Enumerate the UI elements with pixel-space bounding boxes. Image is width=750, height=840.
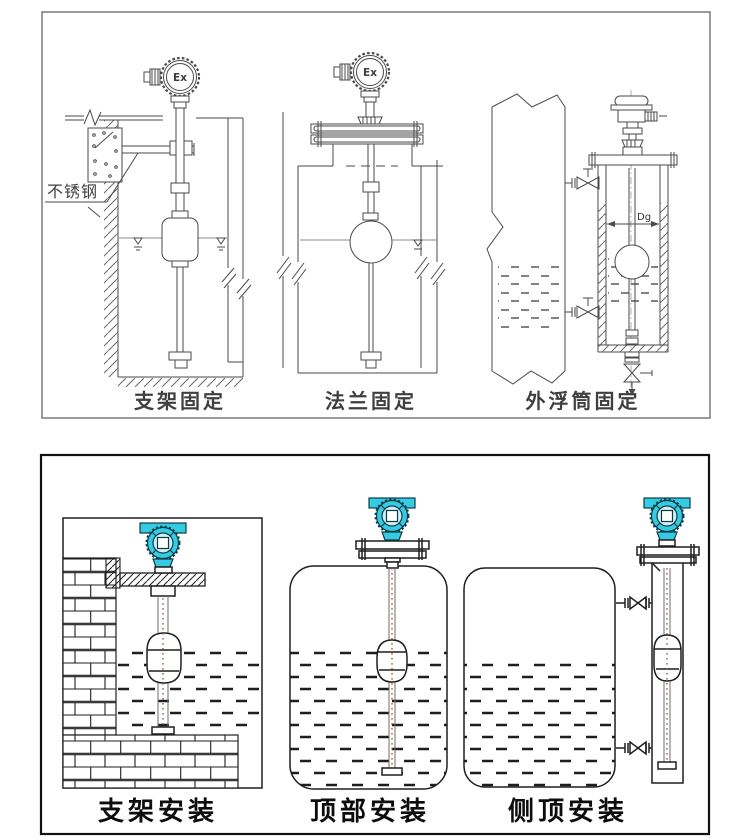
diagram-canvas: Ex 不锈钢 <box>0 0 750 840</box>
caption-bracket-install: 支架安装 <box>98 797 218 827</box>
shelf-bracket <box>120 573 205 586</box>
float <box>147 633 181 683</box>
water-dashes <box>290 650 447 789</box>
dg-label: Dg <box>637 212 651 223</box>
flange-assembly <box>637 544 699 566</box>
float <box>377 640 407 682</box>
caption-bracket-fixing: 支架固定 <box>134 389 226 413</box>
float-ball <box>615 245 649 279</box>
caption-side-top-install: 侧顶安装 <box>508 797 628 827</box>
float <box>162 218 198 261</box>
tank-liquid <box>498 262 560 334</box>
float-ball <box>350 221 392 263</box>
top-panel: Ex 不锈钢 <box>42 12 710 418</box>
water-dashes <box>464 655 615 787</box>
bottom-panel: 支架安装 <box>41 455 709 834</box>
caption-top-install: 顶部安装 <box>310 797 430 827</box>
ex-marking: Ex <box>173 72 187 84</box>
caption-flange-fixing: 法兰固定 <box>325 389 417 413</box>
water-dashes <box>118 645 260 733</box>
caption-chamber-fixing: 外浮筒固定 <box>526 389 641 413</box>
floor-hatch <box>118 378 243 387</box>
ex-marking: Ex <box>363 67 377 79</box>
installation-diagram-sheet: Ex 不锈钢 <box>0 0 750 840</box>
wall-cap <box>106 558 120 588</box>
stainless-steel-text: 不锈钢 <box>47 182 98 201</box>
